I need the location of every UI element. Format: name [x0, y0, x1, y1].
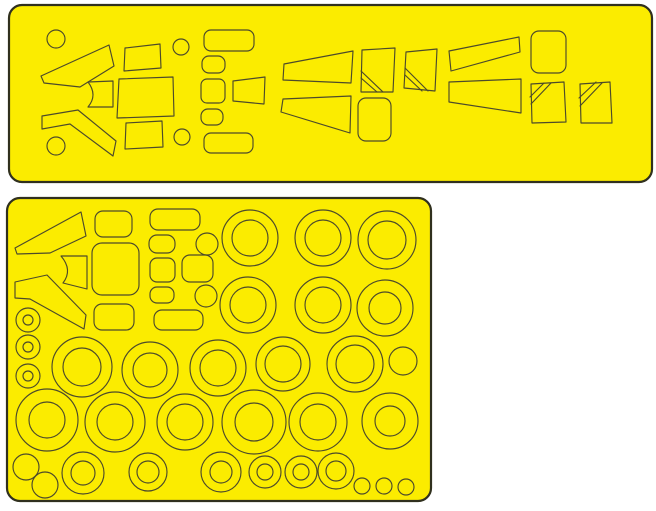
- wheel-and-canopy-mask-sheet: [7, 198, 431, 501]
- mask-sheets-photo: [0, 0, 656, 511]
- mask-sheets-canvas: [0, 0, 656, 511]
- canopy-mask-sheet: [9, 5, 652, 182]
